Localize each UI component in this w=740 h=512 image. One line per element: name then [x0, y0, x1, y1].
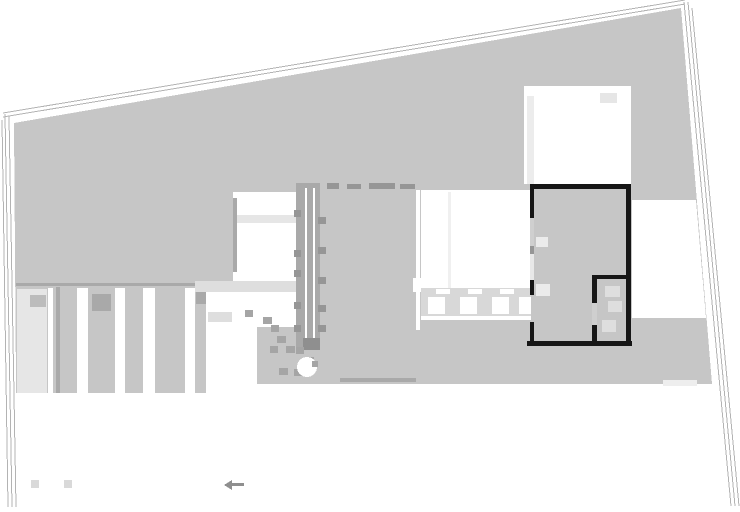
deck-slat-gap — [185, 288, 195, 393]
courtyard — [421, 190, 531, 320]
paver — [519, 297, 531, 314]
bottom-edge-notch — [663, 380, 697, 386]
upper-room-fixture — [600, 93, 617, 103]
terrace-band — [195, 281, 300, 292]
survey-marker — [31, 480, 39, 488]
scale-arrow-mark — [224, 480, 244, 490]
paver — [460, 297, 477, 314]
deck-slat-gap — [115, 288, 125, 393]
side-yard — [632, 200, 706, 318]
deck-slat-gap — [77, 288, 88, 393]
upper-room-wall-line — [527, 96, 534, 184]
survey-marker — [64, 480, 72, 488]
left-room — [233, 192, 297, 281]
roof-bottom-edge — [340, 378, 416, 382]
paver — [492, 297, 509, 314]
upper-room — [524, 86, 631, 184]
wall-east — [626, 184, 631, 346]
paver-terrace — [421, 288, 531, 320]
wall-north — [530, 184, 631, 189]
floor-plan-page — [0, 0, 740, 512]
window-band — [237, 215, 296, 223]
left-room-wall — [233, 198, 237, 272]
deck-slat-gap — [48, 288, 53, 393]
wall-south — [527, 341, 632, 346]
deck-edge-rail — [16, 283, 206, 286]
paver — [428, 297, 445, 314]
floor-plan-canvas — [0, 0, 740, 512]
deck-slat-gap — [143, 288, 155, 393]
survey-markers — [31, 480, 72, 488]
